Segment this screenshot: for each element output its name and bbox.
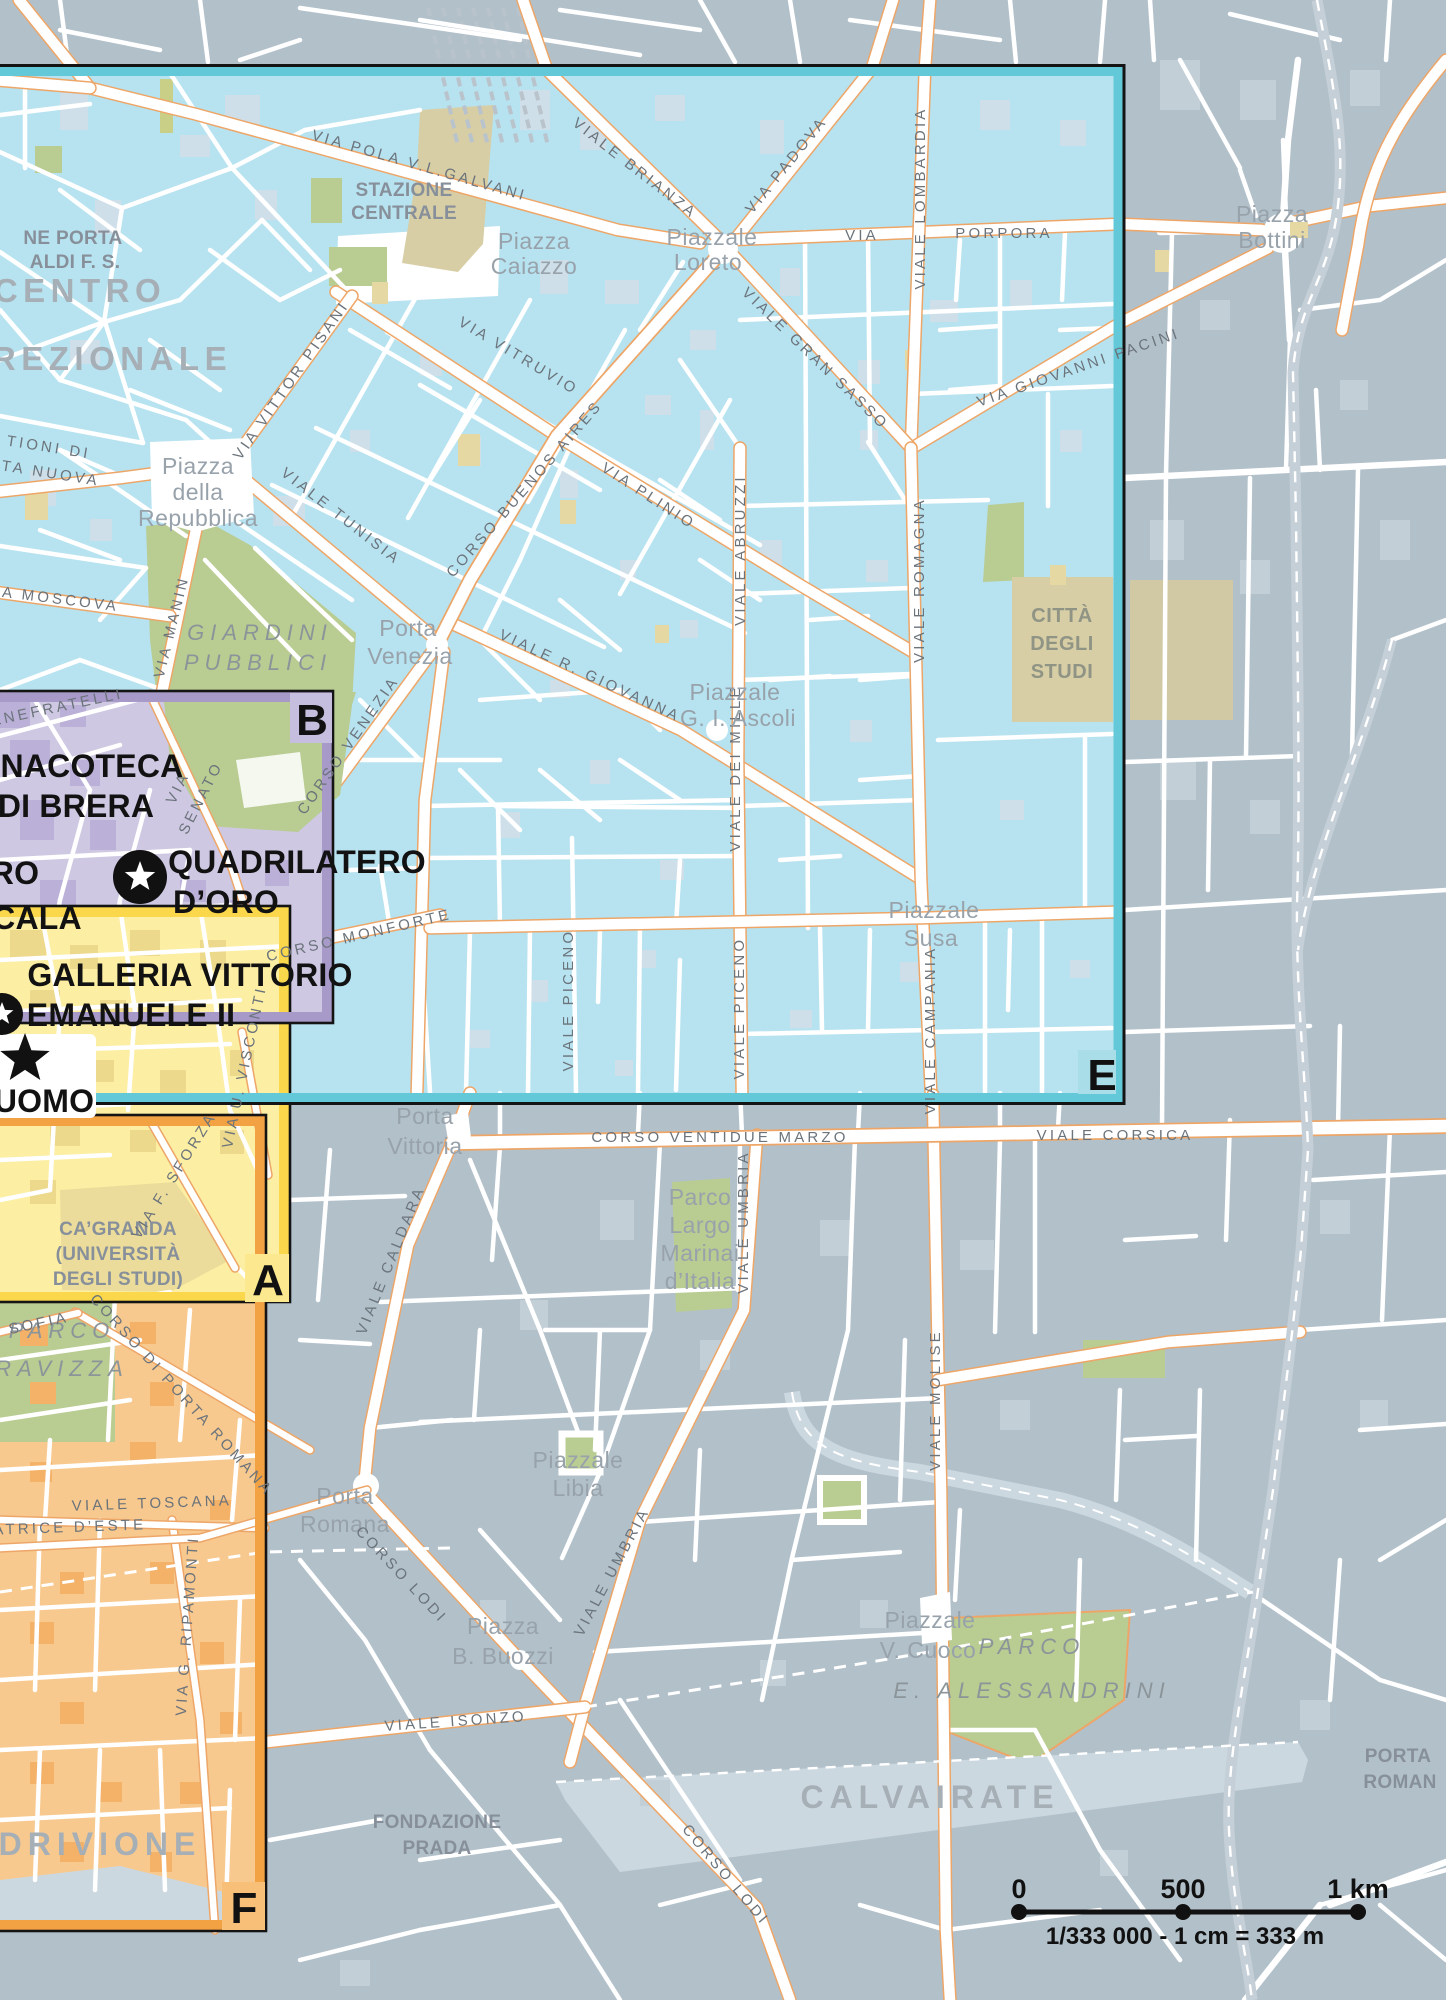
svg-text:VIA: VIA [845, 227, 879, 244]
svg-text:DI BRERA: DI BRERA [0, 788, 154, 824]
svg-text:Piazza: Piazza [467, 1613, 539, 1639]
svg-text:VIALE ROMAGNA: VIALE ROMAGNA [911, 497, 928, 663]
svg-text:PORTA: PORTA [1365, 1746, 1432, 1767]
svg-text:Piazzale: Piazzale [889, 897, 980, 923]
svg-text:B: B [296, 696, 328, 745]
svg-text:FONDAZIONE: FONDAZIONE [373, 1812, 502, 1833]
svg-text:CITTÀ: CITTÀ [1031, 604, 1092, 627]
svg-text:Porta: Porta [379, 615, 436, 641]
svg-text:CALA: CALA [0, 900, 82, 936]
svg-text:QUADRILATERO: QUADRILATERO [168, 844, 426, 880]
svg-text:Porta: Porta [396, 1103, 453, 1129]
svg-text:Repubblica: Repubblica [138, 505, 258, 531]
svg-text:VIALE CORSICA: VIALE CORSICA [1037, 1127, 1194, 1144]
svg-text:UOMO: UOMO [0, 1083, 94, 1119]
svg-text:D’ORO: D’ORO [173, 884, 279, 920]
svg-text:PRADA: PRADA [402, 1838, 471, 1859]
svg-text:B. Buozzi: B. Buozzi [452, 1643, 554, 1669]
svg-text:Parco: Parco [669, 1184, 732, 1210]
svg-text:STUDI: STUDI [1031, 661, 1094, 683]
svg-text:VIALE ABRUZZI: VIALE ABRUZZI [732, 474, 749, 626]
svg-text:VIALE PICENO: VIALE PICENO [560, 929, 577, 1072]
svg-text:VIALE LOMBARDIA: VIALE LOMBARDIA [912, 106, 929, 289]
svg-text:Piazza: Piazza [498, 228, 570, 254]
svg-text:Piazza: Piazza [162, 453, 234, 479]
svg-text:Piazzale: Piazzale [667, 224, 758, 250]
svg-text:EMANUELE II: EMANUELE II [27, 997, 235, 1033]
svg-text:CA’GRANDA: CA’GRANDA [59, 1219, 177, 1240]
svg-text:Libia: Libia [552, 1475, 603, 1501]
svg-text:CENTRO: CENTRO [0, 272, 166, 309]
svg-text:DRIVIONE: DRIVIONE [0, 1826, 201, 1862]
svg-text:E. ALESSANDRINI: E. ALESSANDRINI [893, 1678, 1170, 1703]
svg-text:Largo: Largo [669, 1212, 730, 1238]
svg-text:Susa: Susa [904, 925, 958, 951]
svg-text:500: 500 [1160, 1874, 1205, 1904]
svg-text:VIALE PICENO: VIALE PICENO [731, 937, 748, 1080]
svg-text:NE PORTA: NE PORTA [23, 228, 122, 249]
svg-text:CALVAIRATE: CALVAIRATE [800, 1779, 1059, 1815]
svg-text:RO: RO [0, 855, 39, 891]
svg-text:Marinai: Marinai [661, 1240, 740, 1266]
svg-text:PORPORA: PORPORA [955, 225, 1052, 242]
svg-text:F: F [231, 1884, 258, 1933]
svg-text:REZIONALE: REZIONALE [0, 340, 232, 377]
svg-text:E: E [1087, 1051, 1116, 1100]
svg-text:1/333 000 - 1 cm = 333 m: 1/333 000 - 1 cm = 333 m [1046, 1923, 1324, 1950]
svg-text:GALLERIA VITTORIO: GALLERIA VITTORIO [27, 957, 352, 993]
svg-text:PUBBLICI: PUBBLICI [184, 650, 332, 675]
svg-text:Piazza: Piazza [1236, 201, 1308, 227]
svg-text:DEGLI: DEGLI [1030, 633, 1094, 655]
svg-text:STAZIONE: STAZIONE [355, 180, 452, 201]
svg-text:1 km: 1 km [1327, 1874, 1389, 1904]
svg-text:Bottini: Bottini [1238, 227, 1305, 253]
svg-text:della: della [172, 479, 223, 505]
svg-text:Venezia: Venezia [367, 643, 452, 669]
svg-text:d’Italia: d’Italia [665, 1268, 735, 1294]
svg-text:VIALE CAMPANIA: VIALE CAMPANIA [922, 946, 939, 1115]
svg-text:ROMAN: ROMAN [1363, 1772, 1436, 1793]
svg-text:Porta: Porta [316, 1483, 373, 1509]
svg-text:Piazzale: Piazzale [885, 1607, 976, 1633]
svg-text:Piazzale: Piazzale [690, 679, 781, 705]
svg-text:RAVIZZA: RAVIZZA [0, 1356, 129, 1381]
svg-text:Loreto: Loreto [674, 249, 742, 275]
svg-text:GIARDINI: GIARDINI [187, 620, 333, 645]
svg-text:CORSO VENTIDUE MARZO: CORSO VENTIDUE MARZO [591, 1129, 848, 1146]
svg-text:(UNIVERSITÀ: (UNIVERSITÀ [56, 1243, 181, 1265]
svg-text:NACOTECA: NACOTECA [1, 748, 184, 784]
svg-text:DEGLI STUDI): DEGLI STUDI) [53, 1269, 183, 1290]
svg-text:PARCO: PARCO [979, 1634, 1086, 1659]
svg-text:V. Cuoco: V. Cuoco [880, 1637, 977, 1663]
svg-text:G. I. Ascoli: G. I. Ascoli [680, 705, 796, 731]
svg-text:CENTRALE: CENTRALE [351, 203, 457, 224]
svg-text:Romana: Romana [300, 1511, 390, 1537]
svg-text:Vittoria: Vittoria [387, 1133, 462, 1159]
svg-text:A: A [252, 1256, 284, 1305]
svg-text:VIALE UMBRIA: VIALE UMBRIA [735, 1150, 752, 1293]
svg-text:0: 0 [1011, 1874, 1026, 1904]
svg-text:VIALE MOLISE: VIALE MOLISE [927, 1329, 944, 1471]
svg-text:ALDI F. S.: ALDI F. S. [30, 252, 121, 273]
svg-text:Piazzale: Piazzale [533, 1447, 624, 1473]
svg-text:Caiazzo: Caiazzo [491, 253, 578, 279]
